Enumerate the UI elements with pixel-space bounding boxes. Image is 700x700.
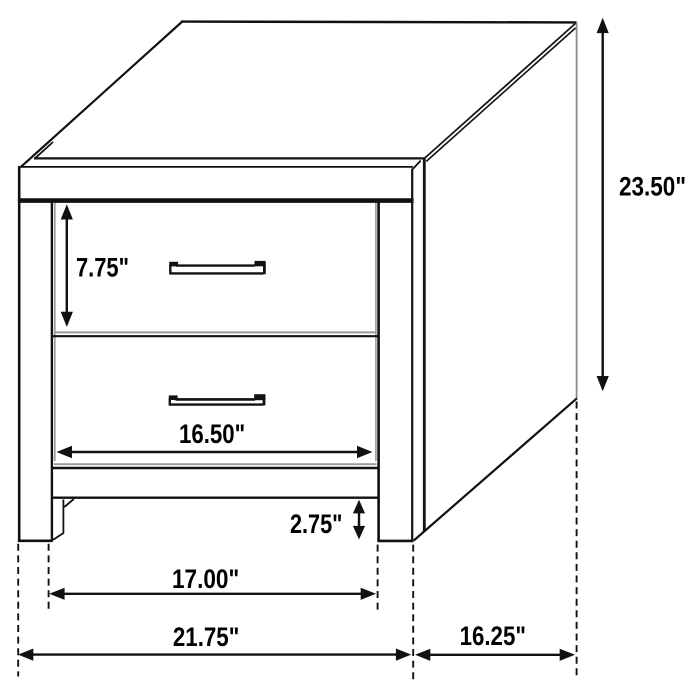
svg-text:17.00": 17.00" bbox=[172, 564, 239, 594]
svg-text:21.75": 21.75" bbox=[173, 622, 239, 652]
svg-text:23.50": 23.50" bbox=[619, 172, 686, 202]
svg-text:2.75": 2.75" bbox=[290, 509, 342, 539]
svg-text:7.75": 7.75" bbox=[76, 253, 129, 283]
svg-text:16.50": 16.50" bbox=[179, 419, 245, 449]
svg-text:16.25": 16.25" bbox=[460, 621, 526, 651]
